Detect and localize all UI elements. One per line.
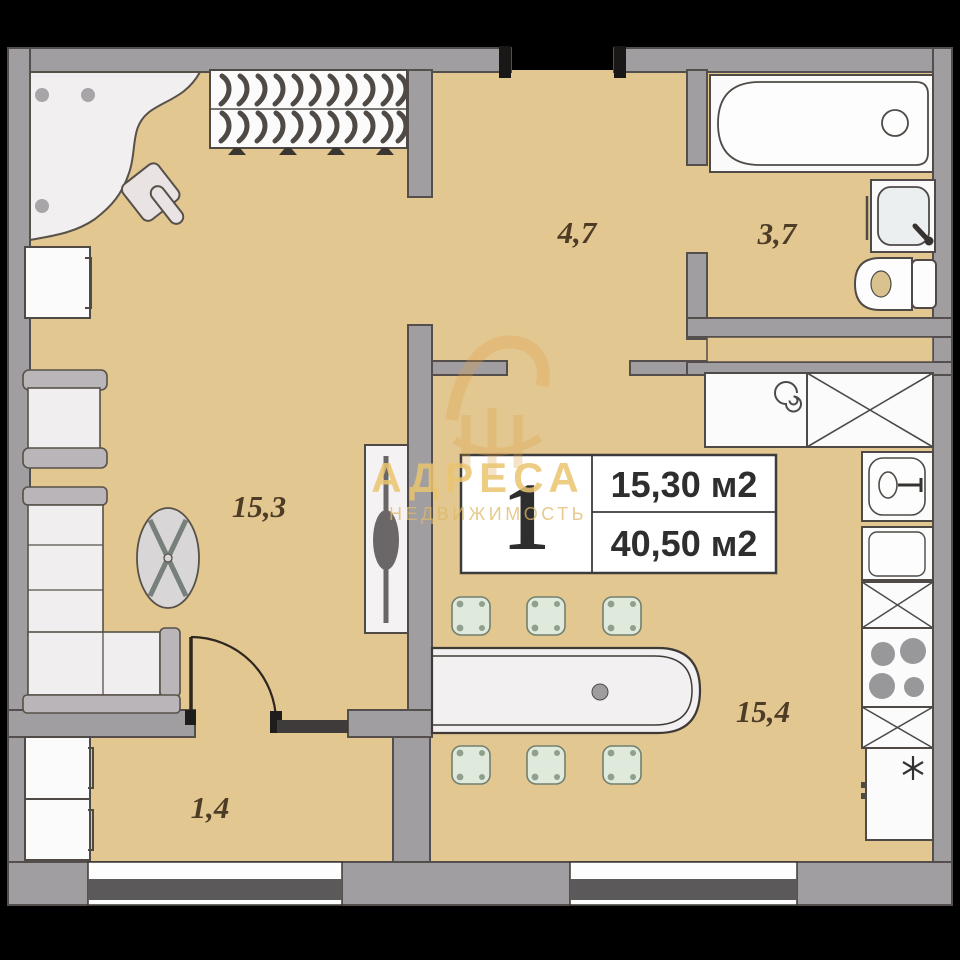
label-hall-area: 4,7 [557,215,598,250]
wardrobe-icon [210,70,407,155]
armchair-icon [23,370,107,468]
label-kitchen-area: 15,4 [736,694,790,729]
entry-jamb-right [614,46,626,78]
kitchen-sink-icon [862,452,933,521]
entry-jamb-left [499,46,511,78]
bathroom-sink-icon [867,180,935,252]
kitchen-cabinet-x-low-icon [862,707,933,748]
label-balcony-area: 1,4 [191,790,230,825]
bar-table-icon [432,648,700,733]
toilet-icon [855,258,936,310]
wall-top-left [8,48,511,72]
wall-living-divider [408,325,432,737]
kitchen-cabinet-icon [862,527,933,580]
coffee-table-icon [137,508,199,608]
watermark-tagline: НЕДВИЖИМОСТЬ [389,504,587,524]
wall-top-right [614,48,952,72]
window-balcony-frame [88,879,342,900]
washing-machine-icon [705,373,807,447]
vent-shaft [707,337,933,362]
room-area-value: 15,30 м2 [611,464,758,505]
cabinet-icon [25,247,91,318]
watermark-brand: АДРЕСА [371,454,584,501]
label-bathroom-area: 3,7 [757,216,798,251]
wall-entry-stub [408,70,432,197]
wall-balcony-kitchen [393,735,430,862]
wall-balcony-right [348,710,432,737]
window-kitchen-frame [570,879,797,900]
floor-plan: 1 15,30 м2 40,50 м2 15,3 4,7 3,7 15,4 1,… [0,0,960,960]
total-area-value: 40,50 м2 [611,523,758,564]
wall-bath-upper [687,70,707,165]
kitchen-cabinet-x-top-icon [807,373,933,447]
label-living-area: 15,3 [232,489,286,524]
bathtub-icon [710,75,933,172]
fridge-icon [861,748,933,840]
kitchen-cabinet-x-mid-icon [862,582,933,628]
wall-right [933,48,952,905]
stove-icon [862,628,933,707]
balcony-cabinet-icon [25,737,93,860]
wall-bath-bottom [687,318,952,337]
floor-plan-canvas: 1 15,30 м2 40,50 м2 15,3 4,7 3,7 15,4 1,… [0,0,960,960]
wall-balcony-left [8,710,195,737]
door-threshold [277,720,348,733]
